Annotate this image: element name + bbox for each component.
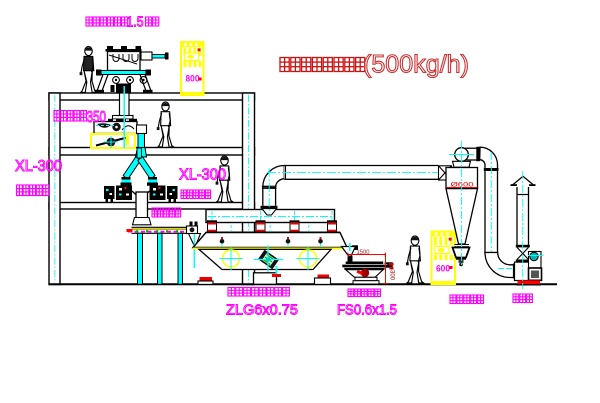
svg-text:(500kg/h): (500kg/h) — [363, 51, 469, 79]
svg-text:800: 800 — [186, 74, 200, 85]
svg-text:1.5: 1.5 — [127, 14, 144, 31]
svg-text:350: 350 — [87, 109, 107, 126]
svg-text:1500: 1500 — [357, 250, 371, 256]
svg-text:XL-300: XL-300 — [15, 158, 62, 175]
svg-text:300: 300 — [389, 270, 395, 281]
svg-text:ZLG6x0.75: ZLG6x0.75 — [226, 303, 298, 319]
svg-text:XL-300: XL-300 — [179, 167, 226, 184]
svg-text:FS0.6x1.5: FS0.6x1.5 — [337, 303, 397, 319]
svg-text:600: 600 — [436, 264, 450, 275]
